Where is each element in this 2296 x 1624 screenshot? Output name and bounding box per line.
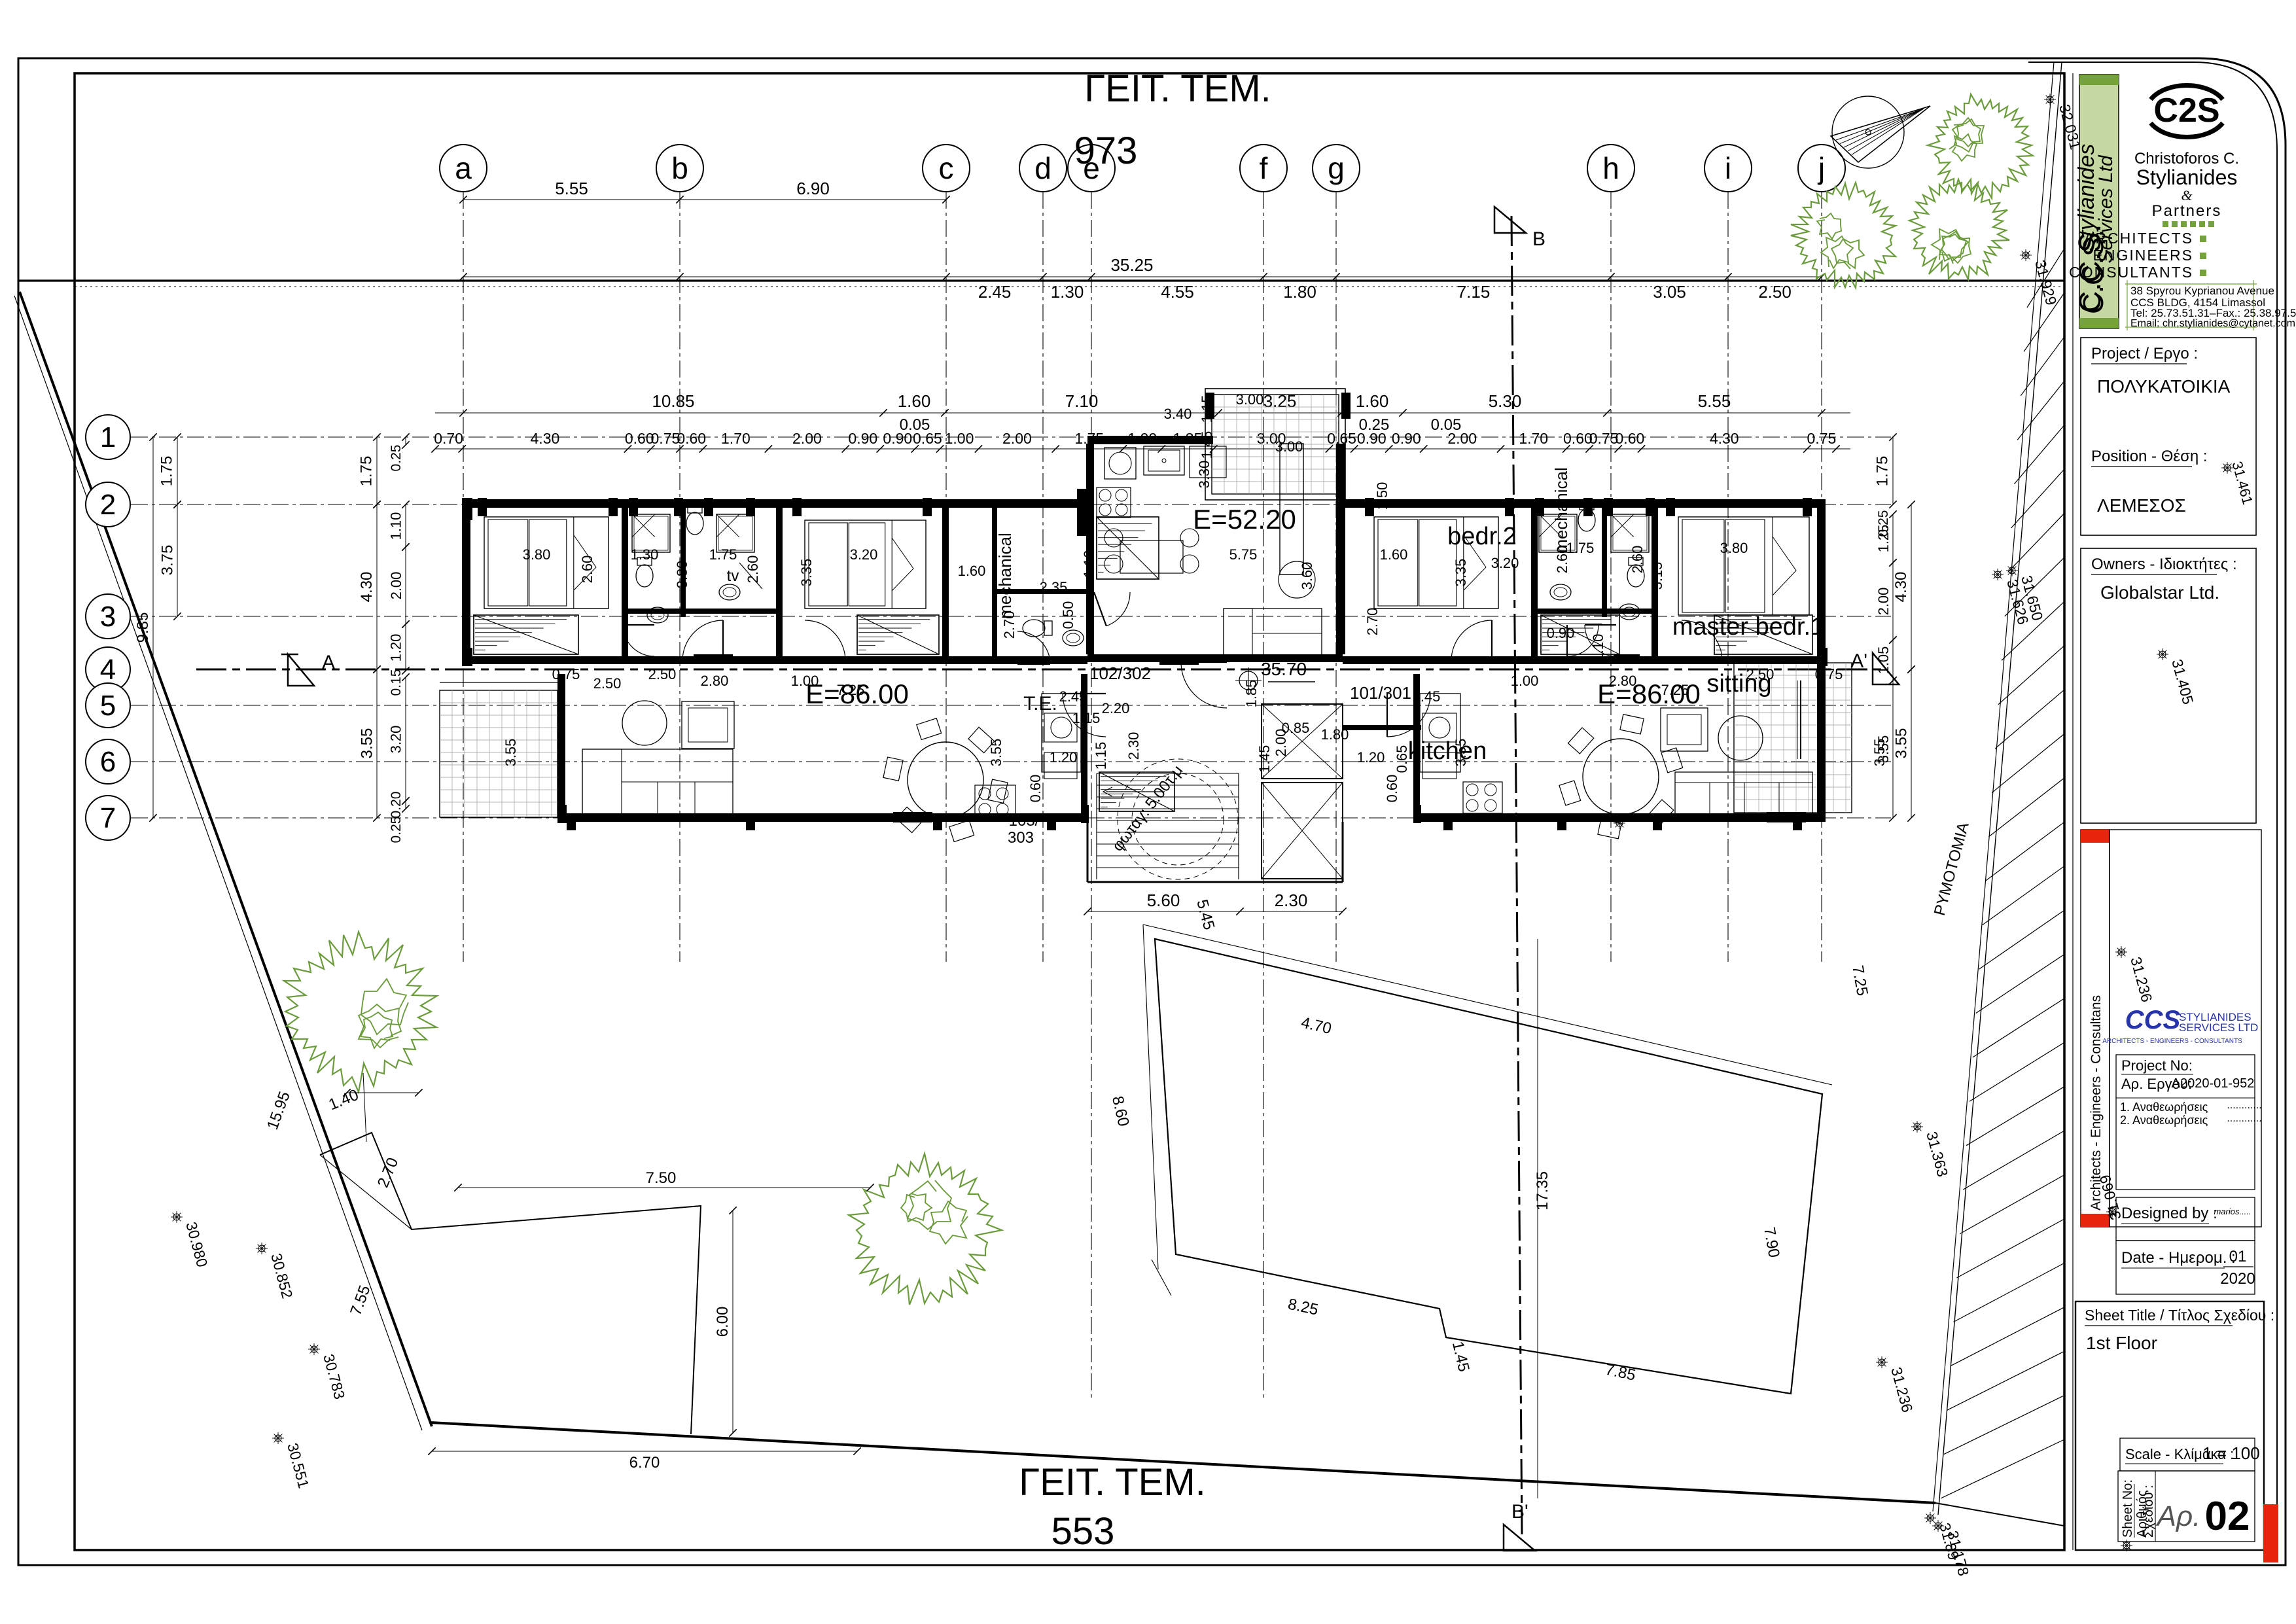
svg-text:0.50: 0.50 [1060,601,1076,629]
svg-text:kitchen: kitchen [1408,737,1487,765]
svg-text:2.60: 2.60 [1629,546,1646,574]
svg-text:1.20: 1.20 [1357,749,1385,766]
svg-text:1.60: 1.60 [898,391,931,411]
svg-text:Σχεδίου :: Σχεδίου : [2142,1485,2156,1538]
svg-text:CONSULTANTS: CONSULTANTS [2069,264,2193,281]
svg-text:0.90: 0.90 [1547,625,1575,641]
svg-text:Globalstar Ltd.: Globalstar Ltd. [2100,582,2219,603]
svg-text:2.45: 2.45 [1059,688,1087,705]
svg-text:0.75: 0.75 [552,666,580,682]
svg-text:2.80: 2.80 [1609,673,1637,689]
svg-text:ARCHITECTS: ARCHITECTS [2084,230,2193,247]
svg-text:102/302: 102/302 [1089,663,1151,683]
svg-text:2.35: 2.35 [1040,579,1068,595]
svg-text:2.60: 2.60 [745,556,761,584]
svg-text:2.30: 2.30 [1125,732,1142,760]
svg-text:02: 02 [2205,1494,2250,1539]
svg-text:3.00: 3.00 [1236,391,1264,408]
svg-text:1.60: 1.60 [1356,391,1389,411]
svg-text:3.80: 3.80 [1720,540,1748,556]
svg-text:0.90: 0.90 [1392,430,1421,447]
svg-text:7.15: 7.15 [1457,282,1491,302]
svg-text:1.20: 1.20 [1050,749,1078,766]
svg-text:3.55: 3.55 [988,739,1004,767]
svg-text:2.50: 2.50 [1758,282,1792,302]
svg-text:c: c [939,151,954,185]
svg-text:0.60: 0.60 [1027,775,1044,803]
svg-text:2.00: 2.00 [1875,588,1892,616]
svg-text:01: 01 [2229,1248,2247,1265]
svg-text:2.00: 2.00 [1273,729,1289,757]
svg-text:3.20: 3.20 [1491,555,1519,571]
svg-text:3.55: 3.55 [359,728,376,759]
svg-text:7.25: 7.25 [1661,682,1689,698]
svg-text:0.75: 0.75 [1815,666,1843,682]
svg-text:303: 303 [1008,829,1034,847]
svg-text:1st Floor: 1st Floor [2086,1333,2157,1353]
svg-text:0.20: 0.20 [389,792,404,819]
svg-text:d: d [1034,151,1051,185]
svg-text:38 Spyrou Kyprianou Avenue: 38 Spyrou Kyprianou Avenue [2130,285,2274,297]
svg-text:5.30: 5.30 [1489,391,1522,411]
svg-text:1.60: 1.60 [1380,546,1408,563]
svg-text:1.85: 1.85 [1243,680,1260,708]
svg-text:6.90: 6.90 [796,179,830,198]
svg-text:ENGINEERS: ENGINEERS [2093,247,2193,264]
svg-text:ΠΟΛΥΚΑΤΟΙΚΙΑ: ΠΟΛΥΚΑΤΟΙΚΙΑ [2097,376,2231,397]
svg-text:Partners: Partners [2152,202,2222,220]
svg-text:Project / Εργο :: Project / Εργο : [2091,345,2198,362]
svg-text:T.E.: T.E. [1023,693,1057,715]
svg-text:E=52.20: E=52.20 [1193,504,1296,535]
svg-text:4.30: 4.30 [1710,430,1739,447]
svg-text:10.85: 10.85 [652,391,694,411]
svg-text:Designed by :: Designed by : [2121,1205,2217,1222]
svg-text:SERVICES LTD: SERVICES LTD [2179,1021,2258,1034]
svg-text:3.20: 3.20 [850,546,878,563]
svg-text:0.15: 0.15 [389,669,404,696]
svg-text:1.20: 1.20 [388,634,404,662]
svg-text:3.30: 3.30 [1196,461,1212,489]
svg-text:1.50: 1.50 [1374,482,1390,510]
svg-text:4.55: 4.55 [1161,282,1194,302]
svg-text:mechanical: mechanical [995,533,1015,619]
svg-text:1.80: 1.80 [1321,726,1349,743]
svg-text:j: j [1817,151,1825,185]
svg-text:3.35: 3.35 [1453,559,1469,587]
svg-text:1.70: 1.70 [1519,430,1548,447]
svg-text:2.80: 2.80 [701,673,729,689]
svg-text:tv: tv [727,567,739,585]
svg-text:Project No:: Project No: [2121,1057,2193,1074]
svg-text:Αρ.: Αρ. [2155,1500,2201,1532]
svg-text:4.30: 4.30 [531,430,560,447]
svg-text:CCS: CCS [2125,1006,2181,1034]
svg-text:ΓΕΙΤ. ΤΕΜ.: ΓΕΙΤ. ΤΕΜ. [1084,67,1271,110]
svg-text:2.00: 2.00 [1447,430,1477,447]
svg-text:a: a [455,151,472,185]
svg-text:3.55: 3.55 [1871,739,1888,767]
svg-text:3.05: 3.05 [1653,282,1686,302]
svg-text:3.55: 3.55 [1453,739,1469,767]
svg-text:3.60: 3.60 [1299,562,1315,590]
svg-text:2: 2 [100,489,116,521]
svg-text:553: 553 [1051,1510,1115,1553]
svg-text:0.65: 0.65 [913,430,942,447]
svg-text:Position - Θέση :: Position - Θέση : [2091,448,2208,465]
svg-text:1.10: 1.10 [388,512,404,540]
svg-text:2.20: 2.20 [1102,700,1130,716]
svg-text:0.60: 0.60 [677,430,706,447]
svg-text:1.00: 1.00 [791,673,819,689]
svg-text:6: 6 [100,746,116,778]
svg-text:2.70: 2.70 [1001,611,1017,639]
svg-text:0.25: 0.25 [389,817,404,843]
svg-text:3.75: 3.75 [159,545,177,576]
svg-text:1.80: 1.80 [1283,282,1316,302]
svg-text:3.40: 3.40 [1164,406,1192,422]
svg-text:h: h [1602,151,1619,185]
svg-text:3.55: 3.55 [503,739,519,767]
svg-text:1.75: 1.75 [358,456,376,487]
svg-text:0.75: 0.75 [651,430,680,447]
svg-text:2.50: 2.50 [648,666,677,682]
svg-text:1.60: 1.60 [958,563,986,579]
svg-text:5.55: 5.55 [1698,391,1731,411]
svg-text:master bedr.1: master bedr.1 [1672,613,1824,641]
svg-text:i: i [1725,151,1731,185]
svg-text:0.75: 0.75 [1589,430,1619,447]
svg-text:1.45: 1.45 [1199,431,1215,459]
svg-text:1.25: 1.25 [1875,525,1892,553]
svg-text:1.70: 1.70 [721,430,751,447]
svg-text:4.30: 4.30 [358,572,376,603]
svg-text:0.75: 0.75 [1807,430,1837,447]
svg-text:g: g [1328,151,1345,185]
svg-text:2.60: 2.60 [579,556,595,584]
svg-text:B: B [1532,228,1545,250]
svg-text:35.70: 35.70 [1261,659,1307,679]
svg-text:C2S: C2S [2153,92,2219,130]
svg-text:1.30: 1.30 [1051,282,1084,302]
svg-text:2.00: 2.00 [1002,430,1032,447]
svg-text:6.00: 6.00 [714,1307,732,1337]
svg-text:1: 1 [100,421,116,453]
svg-text:3.80: 3.80 [674,561,690,589]
svg-text:Sheet No:: Sheet No: [2121,1479,2135,1538]
svg-text:marios.....: marios..... [2214,1207,2251,1216]
svg-text:17.35: 17.35 [1534,1171,1551,1210]
svg-text:5.75: 5.75 [1229,546,1258,563]
svg-text:7.25: 7.25 [837,682,865,698]
svg-text:ΓΕΙΤ. ΤΕΜ.: ΓΕΙΤ. ΤΕΜ. [1019,1461,1206,1504]
svg-text:............: ............ [2227,1100,2261,1111]
svg-text:0.25: 0.25 [389,445,404,472]
svg-text:3.20: 3.20 [388,726,404,754]
svg-text:1.45: 1.45 [1256,745,1273,773]
svg-text:0.60: 0.60 [1384,775,1400,803]
svg-text:Date - Ημερομ. :: Date - Ημερομ. : [2121,1249,2236,1267]
svg-text:1.05: 1.05 [1875,646,1892,675]
svg-text:2.00: 2.00 [388,572,404,600]
svg-text:2020: 2020 [2220,1270,2255,1288]
svg-text:1.00: 1.00 [945,430,974,447]
svg-text:35.25: 35.25 [1110,255,1153,275]
svg-text:7: 7 [100,802,116,834]
svg-text:101/301: 101/301 [1350,683,1411,703]
svg-text:6.70: 6.70 [629,1454,660,1472]
svg-text:A2020-01-952: A2020-01-952 [2172,1076,2255,1091]
svg-text:1 = 100: 1 = 100 [2202,1443,2259,1463]
svg-text:1.75: 1.75 [158,456,176,487]
svg-text:3.15: 3.15 [1649,562,1665,590]
svg-text:0.90: 0.90 [848,430,877,447]
svg-text:0.90: 0.90 [1357,430,1386,447]
svg-text:5: 5 [100,690,116,722]
svg-text:0.90: 0.90 [883,430,912,447]
svg-text:b: b [671,151,688,185]
svg-text:Email: chr.stylianides@cytanet: Email: chr.stylianides@cytanet.com.cy [2130,318,2296,329]
svg-text:2.00: 2.00 [792,430,822,447]
svg-text:ΛΕΜΕΣΟΣ: ΛΕΜΕΣΟΣ [2097,495,2186,516]
svg-text:2.45: 2.45 [978,282,1012,302]
svg-text:1.15: 1.15 [1199,395,1215,423]
svg-text:973: 973 [1074,130,1138,172]
svg-text:Christoforos C.: Christoforos C. [2134,150,2239,168]
svg-text:3: 3 [100,601,116,633]
svg-text:Sheet Title / Τίτλος Σχεδί: Sheet Title / Τίτλος Σχεδίου : [2085,1307,2274,1324]
svg-text:4: 4 [100,654,116,686]
svg-text:103/: 103/ [1009,812,1040,830]
svg-text:............: ............ [2227,1113,2261,1124]
svg-text:A': A' [1850,650,1867,672]
svg-text:3.55: 3.55 [1893,728,1911,759]
svg-text:2.45: 2.45 [1413,688,1441,705]
svg-text:1. Αναθεωρήσεις: 1. Αναθεωρήσεις [2120,1101,2208,1114]
svg-text:2.50: 2.50 [1746,666,1775,682]
svg-text:3.80: 3.80 [523,546,551,563]
svg-text:4.30: 4.30 [1892,572,1910,603]
svg-text:0.60: 0.60 [1616,430,1645,447]
svg-text:1.10: 1.10 [1590,634,1606,662]
svg-text:0.60: 0.60 [1563,430,1593,447]
svg-text:5.55: 5.55 [555,179,588,198]
svg-text:1.10: 1.10 [1081,550,1097,578]
svg-text:1.75: 1.75 [709,546,737,563]
svg-text:9.85: 9.85 [134,612,152,643]
svg-text:1.00: 1.00 [1511,673,1539,689]
svg-text:3.35: 3.35 [798,559,815,587]
svg-text:0.70: 0.70 [434,430,463,447]
svg-text:Stylianides: Stylianides [2136,166,2238,189]
svg-text:3.00: 3.00 [1275,438,1303,455]
svg-text:5.60: 5.60 [1147,891,1180,910]
svg-text:1.75: 1.75 [1566,540,1595,556]
svg-text:1.15: 1.15 [1072,710,1101,726]
svg-text:2.30: 2.30 [1275,891,1308,910]
svg-text:7.10: 7.10 [1065,391,1099,411]
svg-text:7.50: 7.50 [646,1169,677,1187]
svg-text:2. Αναθεωρήσεις: 2. Αναθεωρήσεις [2120,1114,2208,1127]
svg-text:0.65: 0.65 [1394,745,1410,773]
svg-text:bedr.2: bedr.2 [1447,523,1517,550]
svg-text:B': B' [1511,1501,1528,1523]
svg-text:1.30: 1.30 [631,546,659,563]
svg-text:2.50: 2.50 [593,675,622,692]
svg-text:ARCHITECTS - ENGINEERS - CONSU: ARCHITECTS - ENGINEERS - CONSULTANTS [2102,1038,2242,1045]
svg-text:0.60: 0.60 [625,430,654,447]
svg-text:2.70: 2.70 [1364,608,1381,636]
svg-text:1.75: 1.75 [1874,456,1892,487]
svg-text:&: & [2181,187,2193,203]
svg-text:A: A [322,652,335,673]
svg-text:Owners - Ιδιοκτήτες :: Owners - Ιδιοκτήτες : [2091,556,2237,573]
svg-text:1.15: 1.15 [1093,742,1109,770]
svg-text:f: f [1260,151,1268,185]
